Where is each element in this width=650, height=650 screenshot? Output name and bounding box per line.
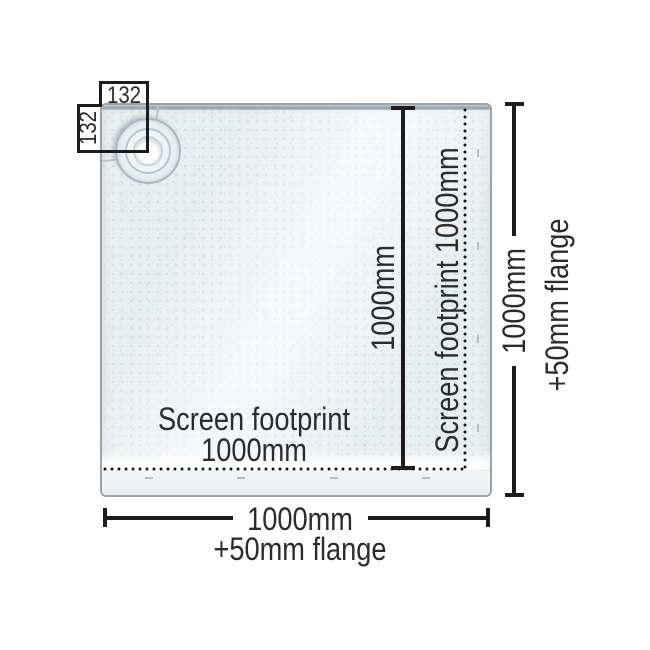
drain-offset-left-tick bbox=[77, 104, 101, 107]
mould-tick bbox=[145, 477, 153, 479]
overall-width-cap-right bbox=[486, 508, 490, 527]
overall-width-line-right bbox=[368, 516, 490, 520]
mould-tick bbox=[477, 149, 479, 157]
mould-tick bbox=[477, 424, 479, 432]
mould-tick bbox=[422, 477, 430, 479]
mould-tick bbox=[330, 477, 338, 479]
mould-tick bbox=[237, 477, 245, 479]
tray-front-flange bbox=[102, 471, 490, 495]
inner-height-label: 1000mm bbox=[367, 245, 399, 351]
overall-width-flange-label: +50mm flange bbox=[213, 533, 386, 565]
screen-footprint-bottom-label-line2: 1000mm bbox=[158, 435, 350, 466]
overall-height-line-lower bbox=[512, 366, 516, 497]
mould-tick bbox=[477, 335, 479, 343]
overall-height-flange-label: +50mm flange bbox=[541, 218, 573, 391]
diagram-canvas: 132 132 1000mm Screen footprint 1000mm S… bbox=[0, 0, 650, 650]
screen-footprint-bottom-label-line1: Screen footprint bbox=[158, 404, 350, 435]
overall-width-line-left bbox=[103, 516, 233, 520]
drain-offset-top-label: 132 bbox=[107, 84, 141, 108]
overall-height-label: 1000mm bbox=[498, 248, 530, 354]
drain-offset-left-label: 132 bbox=[77, 111, 101, 145]
inner-height-cap-bottom bbox=[391, 466, 415, 470]
overall-height-line-upper bbox=[512, 102, 516, 236]
inner-height-line bbox=[401, 106, 405, 470]
screen-footprint-bottom-label: Screen footprint 1000mm bbox=[158, 404, 350, 466]
mould-tick bbox=[477, 242, 479, 250]
drain-offset-extension-vertical bbox=[146, 81, 149, 153]
screen-footprint-side-label: Screen footprint 1000mm bbox=[431, 147, 463, 452]
overall-height-cap-bottom bbox=[505, 493, 524, 497]
drain-offset-extension-horizontal bbox=[77, 150, 149, 153]
